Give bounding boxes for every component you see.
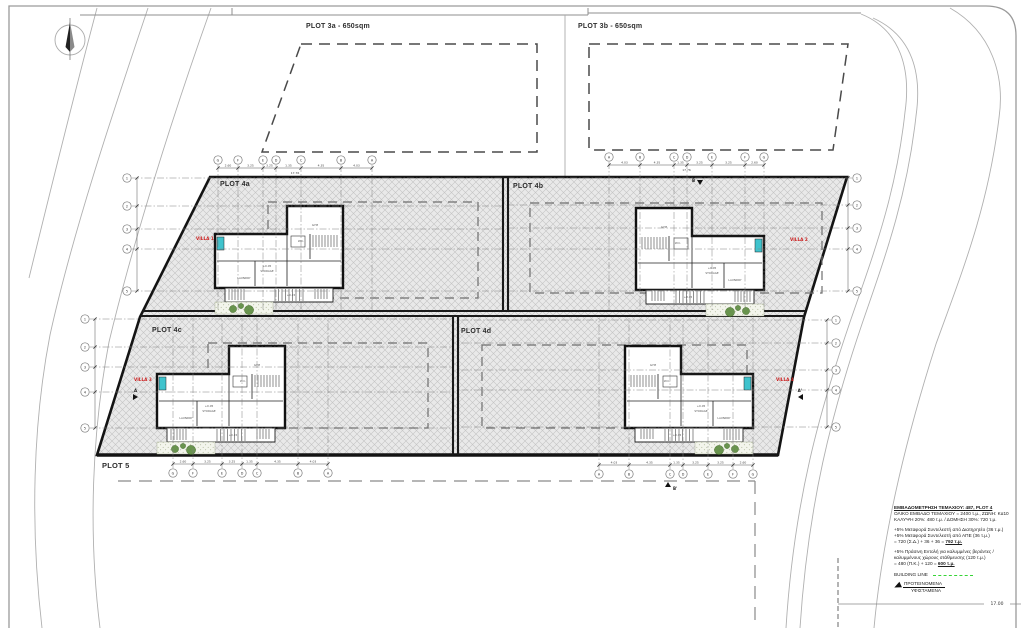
room-label: +0.15 [673,433,682,437]
grid-bubble-label: 4 [835,388,837,392]
grid-bubble-label: D [275,158,278,162]
dim-value: 2.60 [180,460,187,464]
grid-bubble-label: F [237,158,239,162]
building-line-legend: BUILDING LINE [894,572,1020,578]
grid-bubble-label: 4 [856,247,858,251]
plot5-dashed-boundary [118,481,755,628]
grid-bubble-label: G [752,472,755,476]
area-schedule-legend: ΕΜΒΑΔΟΜΕΤΡΗΣΗ ΤΕΜΑΧΙΟΥ: 487, PLOT 4 ΟΛΙΚ… [894,505,1020,594]
section-marker-label: A' [798,388,802,393]
top-boundary-lines [80,8,861,176]
grid-bubble-label: G [172,471,175,475]
room-label: +0.15 [229,433,238,437]
grid-bubble-label: F [744,155,746,159]
room-label: GYM [312,223,319,227]
room-label: GYM [254,363,261,367]
building-line-label: BUILDING LINE [894,572,928,578]
dim-value: 4.03 [353,164,360,168]
room-label: W.C. [675,241,681,245]
room-label: GYM [650,363,657,367]
room-label: +0.15 [684,295,693,299]
plot-4a-label: PLOT 4a [220,181,250,188]
dim-value: 4.35 [318,164,325,168]
dim-value: 1.35 [285,164,292,168]
room-label: +0.05 [708,266,717,270]
plot-4c-label: PLOT 4c [152,327,182,334]
dim-value: 3.25 [696,161,703,165]
grid-bubble-label: F [192,471,194,475]
north-arrow-icon [55,18,85,60]
villa-name-label: VILLA 1 [196,236,214,241]
dim-value: 4.35 [654,161,661,165]
room-label: W.C. [298,239,304,243]
room-label: W.C. [664,379,670,383]
grid-bubble-label: 5 [835,425,837,429]
dim-value: 4.35 [646,461,653,465]
room-label: STORAGE [694,409,708,413]
grid-bubble-label: G [763,155,766,159]
villa-name-label: VILLA 2 [790,237,808,242]
room-label: STORAGE [705,271,719,275]
room-label: LAUNDRY [728,278,742,282]
room-label: +0.05 [263,264,272,268]
dim-value: 4.35 [274,460,281,464]
dim-value: 2.60 [225,164,232,168]
dim-value: 2.60 [740,461,747,465]
dim-value: 1.35 [246,460,253,464]
grid-bubble-label: D [686,155,689,159]
dim-value: 3.25 [247,164,254,168]
proposed-existing-marker-icon [893,582,902,590]
legend-transfer-sum: = 720 (Σ.Δ.) + 36 + 36 = 792 τ.μ. [894,539,1020,545]
grid-bubble-label: 3 [856,226,858,230]
room-label: GYM [661,225,668,229]
grid-bubble-label: 2 [856,203,858,207]
grid-bubble-label: G [217,158,220,162]
dim-value: 3.25 [266,164,273,168]
building-line-swatch [933,575,973,576]
plot-4d-label: PLOT 4d [461,328,491,335]
dim-value: 4.03 [310,460,317,464]
grid-bubble-label: 4 [84,390,86,394]
villa-name-label: VILLA 4 [776,377,794,382]
section-marker-icon [665,482,671,487]
road-width-value: 17.00 [991,601,1004,607]
grid-bubble-label: 1 [856,176,858,180]
room-label: LAUNDRY [179,416,193,420]
grid-bubble-label: E [221,471,223,475]
grid-bubble-label: 2 [84,345,86,349]
dim-value: 3.25 [717,461,724,465]
grid-bubble-label: 5 [84,426,86,430]
grid-bubble-label: 4 [126,247,128,251]
room-label: +0.15 [287,293,296,297]
dim-value: 1.35 [677,161,684,165]
room-label: STORAGE [202,409,216,413]
section-marker-label: B [692,178,695,183]
legend-existing: ΥΦΙΣΤΑΜΕΝΑ [903,587,945,594]
room-label: W.C. [240,379,246,383]
grid-bubble-label: F [732,472,734,476]
room-label: +0.05 [205,404,214,408]
plot-4b-label: PLOT 4b [513,183,543,190]
room-label: LAUNDRY [717,416,731,420]
dim-value: 2.60 [751,161,758,165]
grid-bubble-label: 1 [126,176,128,180]
dim-total: 17.76 [682,168,691,172]
grid-bubble-label: 3 [84,365,86,369]
dim-value: 3.25 [692,461,699,465]
grid-bubble-label: E [262,158,264,162]
plot3-dashed-envelopes [262,44,848,152]
room-label: LAUNDRY [237,276,251,280]
plot-3b-label: PLOT 3b - 650sqm [578,23,642,30]
site-plan-drawing: 17.00 G2.60F3.25E3.25D1.35C4.35B4.03A17.… [0,0,1024,628]
dim-value: 1.35 [673,461,680,465]
plot-5-label: PLOT 5 [102,461,129,470]
dim-value: 4.03 [621,161,628,165]
room-label: +0.05 [697,404,706,408]
legend-coverage: ΚΑΛΥΨΗ 20%: 480 τ.μ. / ΔΟΜΗΣΗ 30%: 720 τ… [894,517,1020,523]
grid-bubble-label: 1 [835,318,837,322]
site-plan-sheet: 17.00 G2.60F3.25E3.25D1.35C4.35B4.03A17.… [0,0,1024,628]
dim-value: 3.25 [725,161,732,165]
dim-value: 4.03 [611,461,618,465]
section-marker-icon [798,394,803,400]
grid-bubble-label: 1 [84,317,86,321]
legend-proposed: ΠΡΟΤΕΙΝΟΜΕΝΑ [903,581,945,587]
proposed-existing-legend: ΠΡΟΤΕΙΝΟΜΕΝΑ ΥΦΙΣΤΑΜΕΝΑ [894,581,1020,594]
grid-bubble-label: 2 [126,204,128,208]
grid-bubble-label: 3 [835,368,837,372]
dim-value: 3.25 [229,460,236,464]
dim-total: 17.76 [291,171,300,175]
grid-bubble-label: 5 [856,289,858,293]
section-marker-label: B' [673,486,677,491]
plot-3a-label: PLOT 3a - 650sqm [306,23,370,30]
villa-name-label: VILLA 3 [134,377,152,382]
room-label: STORAGE [260,269,274,273]
grid-bubble-label: 5 [126,289,128,293]
legend-green-sum: = 480 (Π.Κ.) + 120 = 600 τ.μ. [894,561,1020,567]
grid-bubble-label: D [241,471,244,475]
grid-bubble-label: E [711,155,713,159]
grid-bubble-label: 3 [126,227,128,231]
grid-bubble-label: E [707,472,709,476]
grid-bubble-label: 2 [835,341,837,345]
grid-bubble-label: D [682,472,685,476]
dim-value: 3.25 [204,460,211,464]
